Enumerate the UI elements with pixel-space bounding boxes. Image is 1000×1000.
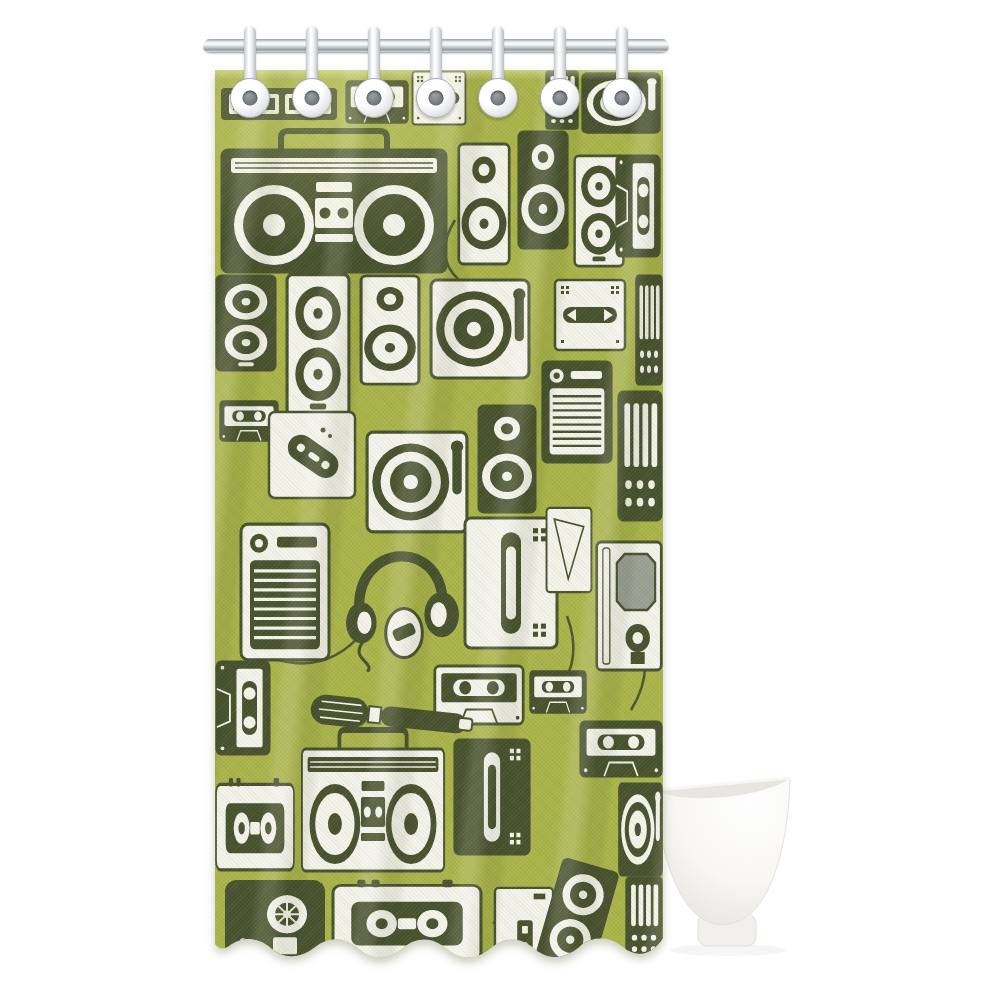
eyelet-hole	[429, 91, 444, 106]
boombox-illustration	[302, 730, 444, 871]
mixer-illustration	[619, 392, 662, 520]
cassette-tape-illustration	[217, 662, 269, 754]
eyelet-hole	[553, 91, 568, 106]
eyelet-hole	[305, 91, 320, 106]
paper-sheet-illustration	[547, 508, 592, 592]
mixer-illustration	[636, 276, 662, 384]
cassette-tape-illustration	[530, 671, 586, 712]
curtain-ring	[476, 26, 520, 122]
hook-eyelet	[602, 78, 642, 118]
turntable-illustration	[431, 280, 529, 378]
amplifier-illustration	[597, 542, 662, 670]
hook-eyelet	[478, 78, 518, 118]
eyelet-hole	[491, 91, 506, 106]
reel-to-reel-illustration	[217, 276, 275, 371]
hook-eyelet	[354, 78, 394, 118]
curtain-ring	[228, 26, 272, 122]
walkman-illustration	[465, 518, 557, 648]
drum-speaker-illustration	[225, 880, 325, 960]
bathtub-body	[656, 778, 790, 925]
hook-eyelet	[292, 78, 332, 118]
curtain-fabric-clip	[215, 70, 663, 962]
speaker-illustration	[361, 276, 419, 384]
tape-deck-illustration	[333, 880, 481, 960]
turntable-illustration	[619, 784, 662, 875]
eyelet-hole	[243, 91, 258, 106]
curtain-ring	[290, 26, 334, 122]
eyelet-hole	[615, 91, 630, 106]
curtain-ring	[414, 26, 458, 122]
speaker-illustration	[519, 132, 568, 248]
cartridge-illustration	[555, 280, 625, 350]
eyelet-hole	[367, 91, 382, 106]
mixer-illustration	[626, 877, 661, 960]
hook-eyelet	[416, 78, 456, 118]
speaker-illustration	[479, 406, 535, 512]
hook-eyelet	[540, 78, 580, 118]
radio-illustration	[241, 524, 329, 660]
walkman-illustration	[455, 740, 530, 854]
product-photo	[0, 0, 1000, 1000]
curtain-pattern	[215, 70, 663, 962]
reel-to-reel-illustration	[287, 274, 349, 415]
cassette-tape-illustration	[617, 156, 660, 256]
game-controller-illustration	[269, 412, 355, 498]
cassette-tape-illustration	[581, 722, 662, 776]
turntable-illustration	[367, 432, 467, 532]
curtain-ring	[352, 26, 396, 122]
hook-eyelet	[230, 78, 270, 118]
bathtub	[648, 766, 798, 958]
boombox-illustration	[222, 131, 446, 272]
speaker-illustration	[459, 144, 509, 264]
curtain-ring	[600, 26, 644, 122]
curtain-ring	[538, 26, 582, 122]
cassette-player-illustration	[216, 778, 294, 870]
radio-illustration	[543, 362, 612, 463]
shower-curtain	[215, 70, 663, 962]
